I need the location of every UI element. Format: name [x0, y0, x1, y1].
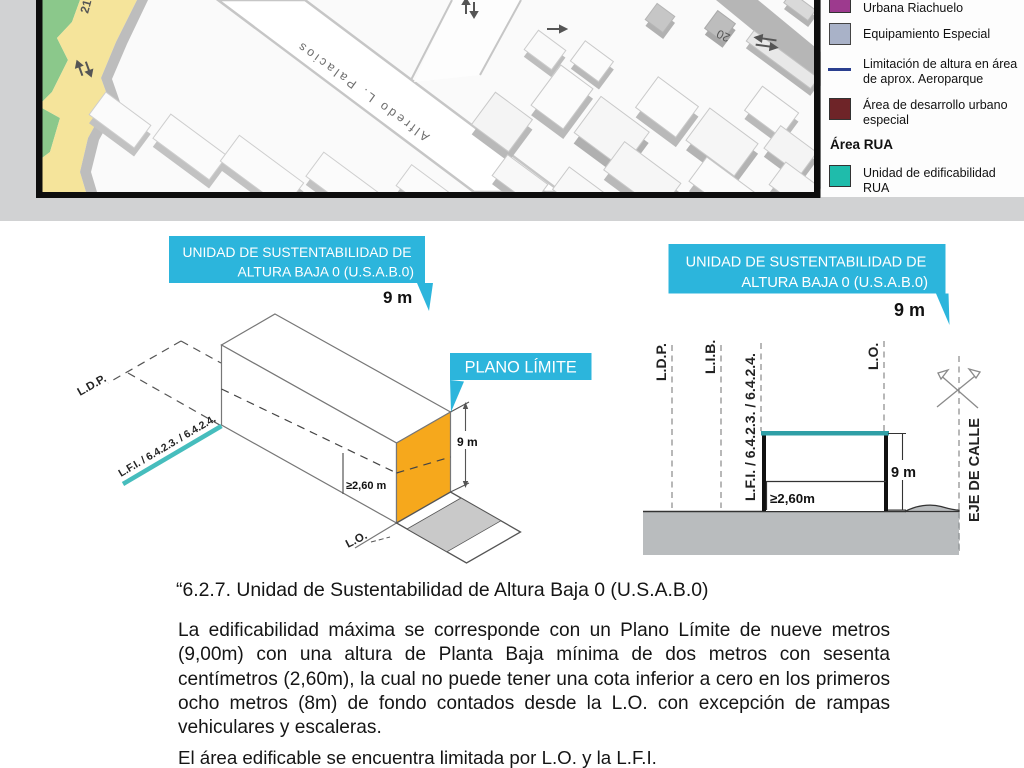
- svg-text:≥2,60m: ≥2,60m: [770, 491, 815, 506]
- svg-text:9 m: 9 m: [457, 435, 478, 449]
- svg-text:PLANO LÍMITE: PLANO LÍMITE: [465, 358, 577, 377]
- svg-text:ALTURA BAJA 0 (U.S.A.B.0): ALTURA BAJA 0 (U.S.A.B.0): [741, 275, 928, 291]
- svg-text:EJE DE CALLE: EJE DE CALLE: [967, 418, 983, 522]
- svg-text:L.I.B.: L.I.B.: [702, 340, 718, 374]
- svg-text:L.D.P.: L.D.P.: [76, 373, 109, 399]
- svg-text:UNIDAD DE SUSTENTABILIDAD DE: UNIDAD DE SUSTENTABILIDAD DE: [183, 245, 412, 260]
- svg-text:L.F.I. / 6.4.2.3. / 6.4.2.4.: L.F.I. / 6.4.2.3. / 6.4.2.4.: [116, 413, 218, 480]
- svg-text:≥2,60 m: ≥2,60 m: [346, 480, 387, 492]
- svg-text:L.F.I. / 6.4.2.3. / 6.4.2.4.: L.F.I. / 6.4.2.3. / 6.4.2.4.: [742, 353, 758, 501]
- svg-text:9 m: 9 m: [894, 300, 925, 320]
- svg-text:UNIDAD DE SUSTENTABILIDAD DE: UNIDAD DE SUSTENTABILIDAD DE: [686, 255, 927, 271]
- svg-text:L.D.P.: L.D.P.: [653, 343, 669, 381]
- svg-text:L.O.: L.O.: [865, 343, 881, 370]
- svg-text:9 m: 9 m: [383, 288, 412, 307]
- svg-text:ALTURA BAJA 0 (U.S.A.B.0): ALTURA BAJA 0 (U.S.A.B.0): [237, 264, 414, 280]
- svg-text:9 m: 9 m: [891, 465, 916, 481]
